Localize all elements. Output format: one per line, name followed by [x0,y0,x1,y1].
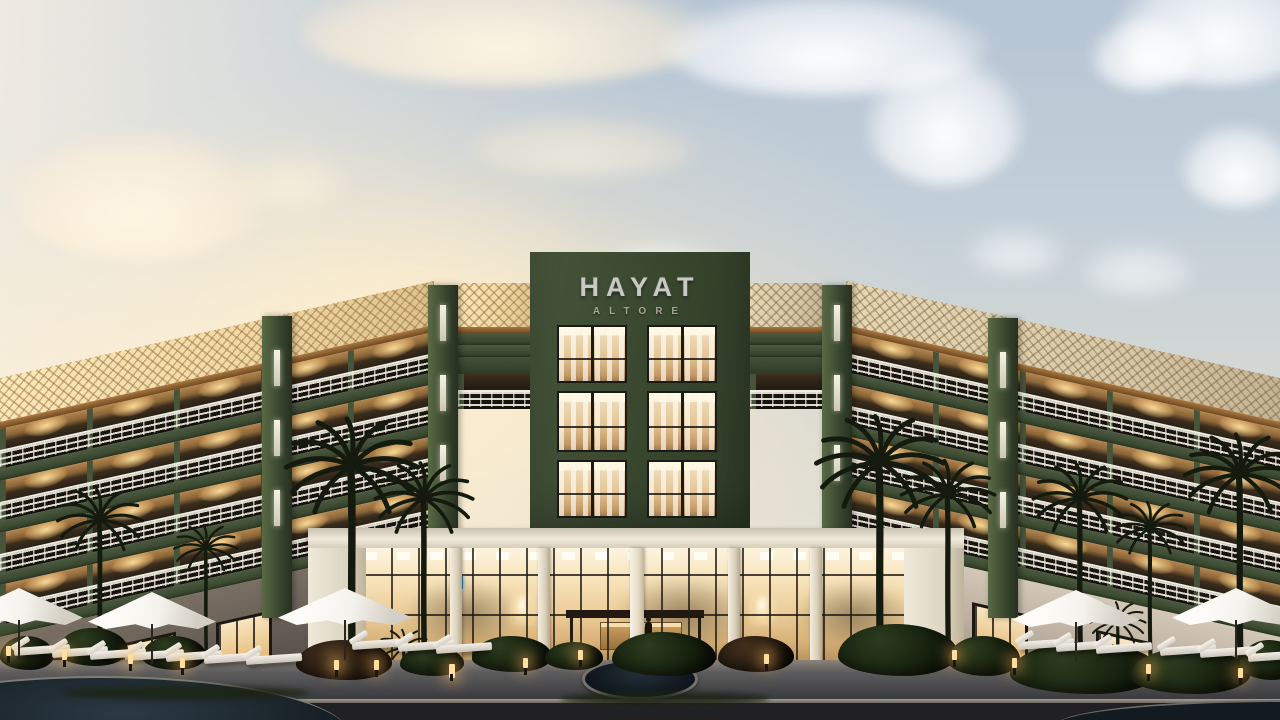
bush [948,636,1020,676]
bush [718,636,794,672]
path-light [180,658,185,668]
path-light [62,650,67,660]
path-light [1146,664,1151,674]
path-light [1012,658,1017,668]
path-light [952,650,957,660]
path-light [374,660,379,670]
lawn-strip [60,686,310,700]
path-light [764,654,769,664]
bush [545,642,603,670]
umbrella-pole [18,620,20,660]
bush [612,632,716,676]
path-light [128,654,133,664]
umbrella-pole [1235,620,1237,660]
umbrella-canopy [1172,588,1280,625]
path-light [1238,668,1243,678]
bush [838,624,958,676]
umbrella-pole [344,620,346,660]
path-light [449,664,455,678]
path-light [578,650,583,660]
path-light [6,646,11,656]
umbrella-canopy [0,588,83,625]
foreground [0,0,1280,720]
umbrella-pole [151,624,153,664]
umbrella-pole [1075,622,1077,662]
hotel-exterior-scene: HAYAT ALTORE [0,0,1280,720]
path-light [334,660,339,670]
bush [472,636,552,672]
path-light [523,658,528,668]
lawn-strip [560,692,770,706]
